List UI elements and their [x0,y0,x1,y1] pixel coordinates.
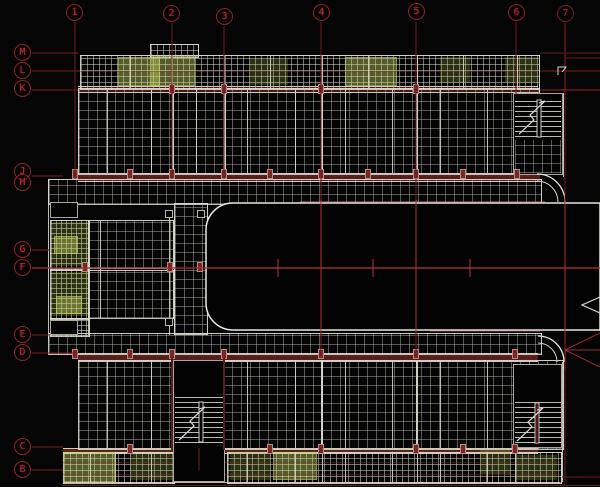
axis-bubble-7: 7 [557,5,574,22]
courtyard-outline [206,203,600,330]
axis-bubble-G: G [14,241,31,258]
axis-bubble-F: F [14,259,31,276]
axis-bubble-D: D [14,344,31,361]
axis-bubble-3: 3 [216,8,233,25]
axis-bubble-C: C [14,438,31,455]
wing-corner-arc [538,336,564,362]
axis-bubble-2: 2 [163,5,180,22]
wing-corner-arc [537,174,565,202]
axis-bubble-6: 6 [508,4,525,21]
axis-bubble-B: B [14,461,31,478]
wing-corner-arc [537,181,558,202]
axis-bubble-H: H [14,174,31,191]
plan-linework [0,0,600,487]
cad-canvas[interactable]: 1 2 3 4 5 6 7 M L K J H G F E D C B [0,0,600,487]
wing-corner-arc [538,343,557,362]
axis-bubble-E: E [14,326,31,343]
axis-bubble-1: 1 [66,4,83,21]
axis-bubble-M: M [14,44,31,61]
axis-bubble-L: L [14,62,31,79]
axis-bubble-4: 4 [313,4,330,21]
axis-bubble-5: 5 [408,3,425,20]
axis-bubble-K: K [14,80,31,97]
